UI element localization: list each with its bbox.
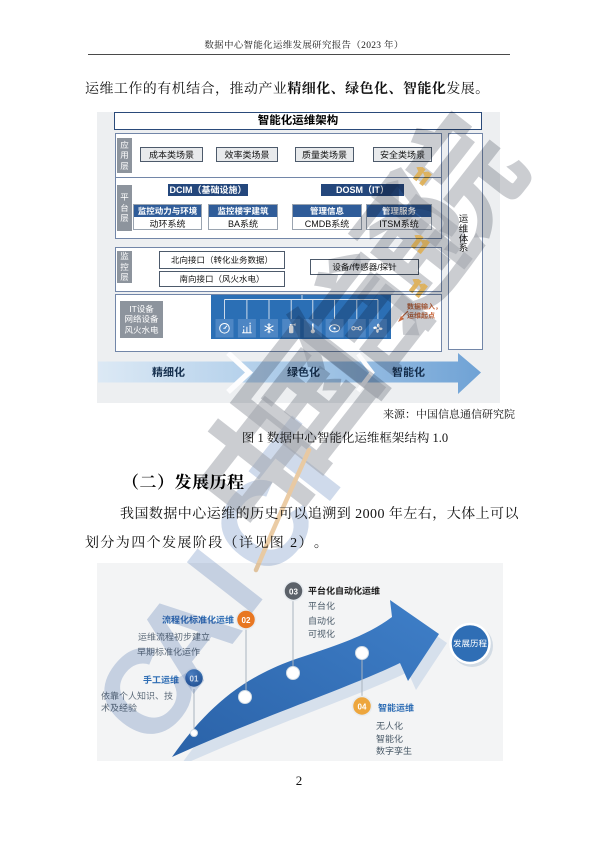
svg-text:发展历程: 发展历程 xyxy=(453,639,488,649)
svg-text:04: 04 xyxy=(358,703,367,712)
svg-text:02: 02 xyxy=(242,616,251,625)
svg-text:03: 03 xyxy=(289,588,298,597)
svg-text:01: 01 xyxy=(190,675,199,684)
